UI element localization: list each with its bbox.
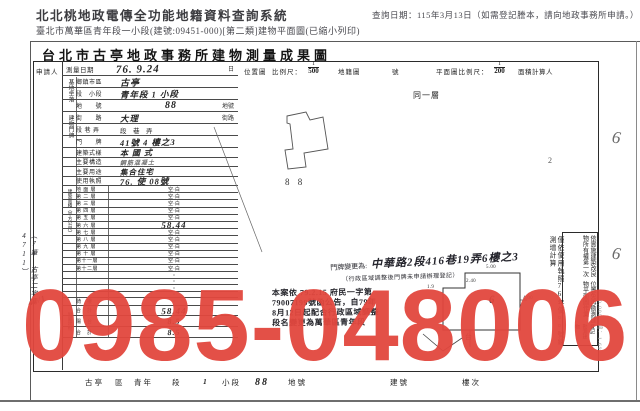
parcel-number-label: 8 8 <box>285 177 305 187</box>
diagonal-line <box>214 127 262 252</box>
same-floor-label: 同一層 <box>413 90 440 101</box>
print-preview-page: 北北桃地政電傳全功能地籍資料查詢系統 查詢日期：115年3月13日（如需登記謄本… <box>0 0 640 411</box>
parcel-outline <box>285 112 328 169</box>
stray-mark: 2 <box>548 156 552 165</box>
phone-watermark: 0985-048006 <box>22 276 628 377</box>
